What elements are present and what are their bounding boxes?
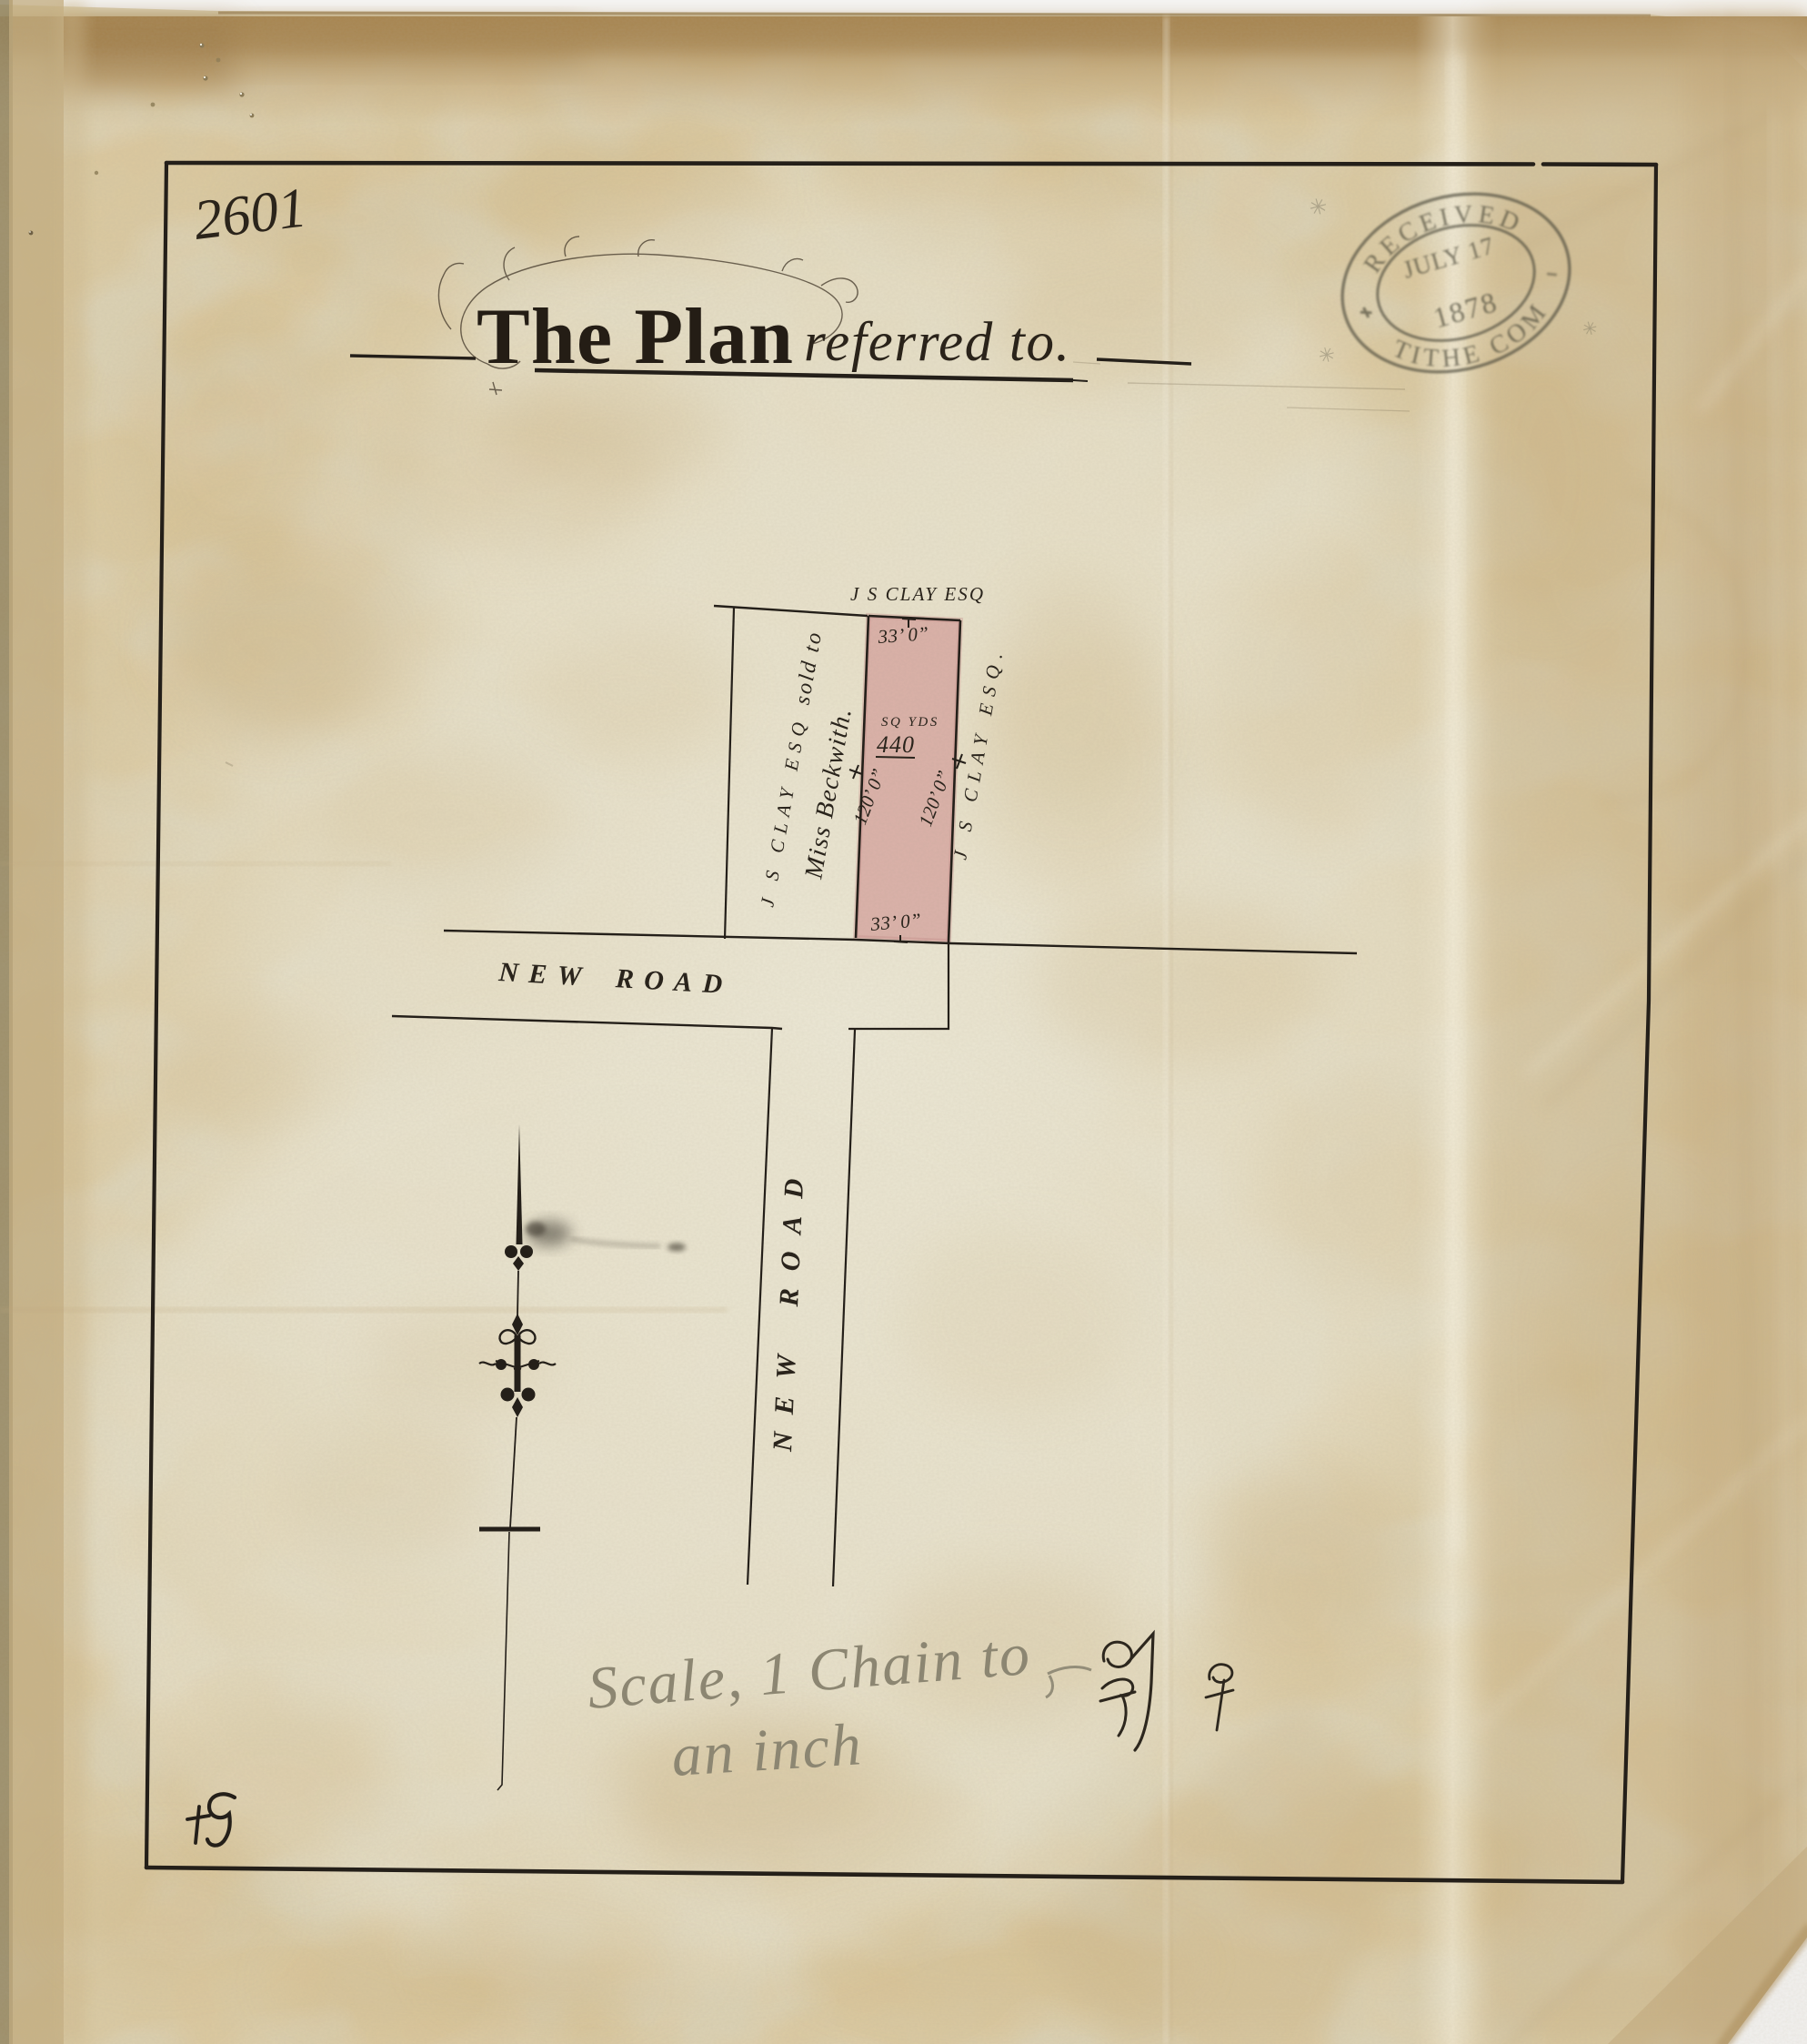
svg-text:J S CLAY ESQ: J S CLAY ESQ [850,583,987,605]
svg-text:33’ 0”: 33’ 0” [868,909,922,935]
svg-text:referred to.: referred to. [804,312,1069,373]
svg-text:SQ YDS: SQ YDS [881,715,939,730]
svg-text:33’ 0”: 33’ 0” [877,622,930,648]
svg-text:an inch: an inch [669,1711,864,1789]
svg-text:440: 440 [877,731,915,758]
svg-text:The Plan: The Plan [477,293,793,381]
